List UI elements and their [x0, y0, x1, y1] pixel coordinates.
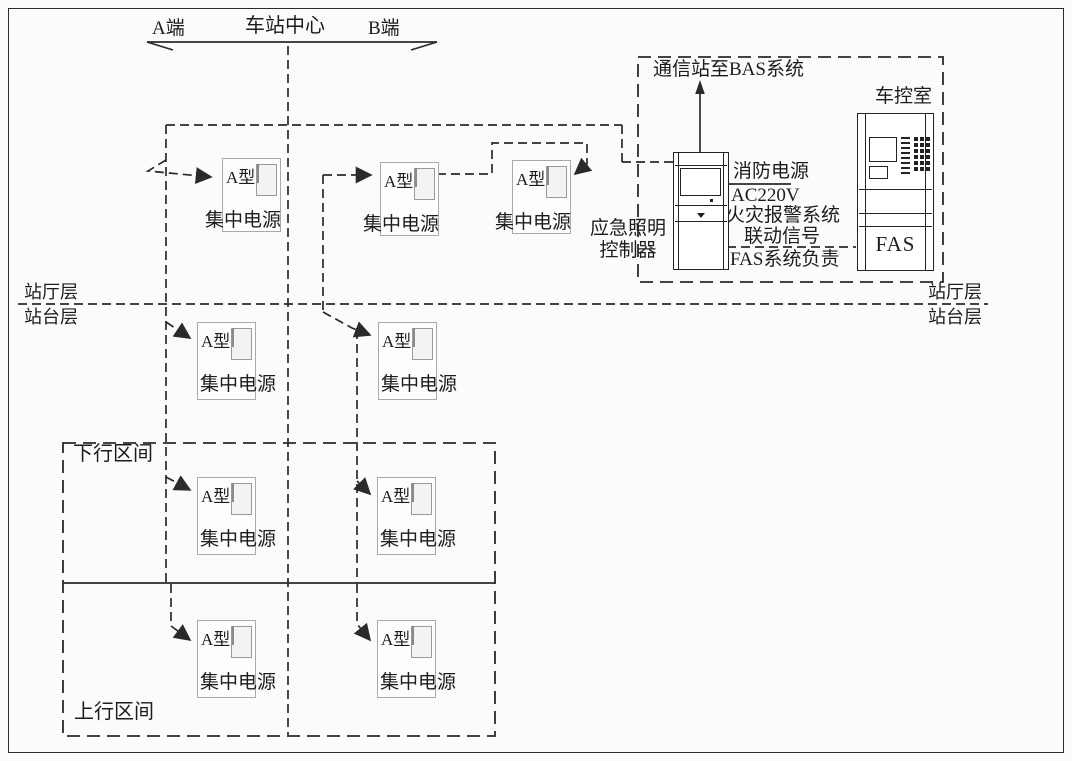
- eps-device-icon: [412, 328, 433, 360]
- fas-cabinet-label: FAS: [858, 232, 933, 257]
- branch-unit-4: [166, 322, 190, 338]
- cabinet-divider: [675, 205, 727, 206]
- bas-arrowhead: [695, 80, 705, 94]
- cabinet-rail: [678, 153, 679, 269]
- unit-name-label: 集中电源: [381, 369, 436, 396]
- unit-type-label: A型: [201, 630, 230, 650]
- branch-unit-9: [357, 584, 370, 640]
- eps-device-icon: [231, 328, 252, 360]
- unit-type-label: A型: [381, 630, 410, 650]
- unit-type-label: A型: [516, 170, 545, 190]
- branch-unit-5: [323, 312, 370, 335]
- controller-led: [710, 199, 713, 202]
- eps-unit-5: A型 集中电源: [378, 322, 437, 400]
- controller-latch-icon: [697, 213, 705, 218]
- branch-unit-7: [357, 481, 370, 494]
- linkage-label: 联动信号: [744, 226, 820, 247]
- cabinet-divider: [675, 221, 727, 222]
- unit-name-label: 集中电源: [363, 209, 438, 236]
- unit-type-label: A型: [382, 332, 411, 352]
- voltage-label: AC220V: [731, 185, 800, 206]
- cabinet-divider: [859, 213, 932, 214]
- eps-unit-7: A型 集中电源: [377, 477, 436, 555]
- eps-unit-6: A型 集中电源: [197, 477, 256, 555]
- center-line-tick-right: [411, 42, 437, 50]
- branch-unit-1: [148, 160, 211, 177]
- control-room-label: 车控室: [875, 86, 932, 107]
- hall-level-label-right: 站厅层: [928, 282, 982, 303]
- eps-unit-3: A型 集中电源: [512, 160, 571, 234]
- platform-level-label-right: 站台层: [928, 307, 982, 328]
- controller-name-line1: 应急照明: [590, 218, 666, 239]
- end-b-label: B端: [368, 18, 400, 39]
- controller-name-label: 应急照明 控制器: [584, 218, 672, 262]
- unit-type-label: A型: [201, 332, 230, 352]
- fire-power-label: 消防电源: [733, 161, 809, 182]
- cabinet-rail: [723, 153, 724, 269]
- fas-duty-label: FAS系统负责: [730, 249, 839, 270]
- eps-device-icon: [546, 166, 567, 198]
- unit-type-label: A型: [381, 487, 410, 507]
- fas-indicator-column: [901, 137, 910, 177]
- end-a-label: A端: [152, 18, 185, 39]
- fas-button-grid: [914, 137, 930, 177]
- unit-type-label: A型: [201, 487, 230, 507]
- cabinet-divider: [675, 165, 727, 166]
- eps-device-icon: [411, 483, 432, 515]
- diagram-canvas: A端 车站中心 B端 站厅层 站台层 站厅层 站台层 下行区间 上行区间 通信站…: [0, 0, 1072, 761]
- unit-name-label: 集中电源: [495, 207, 570, 234]
- fas-keypad: [869, 166, 888, 179]
- eps-unit-2: A型 集中电源: [380, 162, 439, 236]
- fire-alarm-label: 火灾报警系统: [726, 205, 840, 226]
- center-line-tick-left: [147, 42, 173, 50]
- unit-name-label: 集中电源: [205, 205, 280, 232]
- eps-device-icon: [231, 483, 252, 515]
- eps-unit-1: A型 集中电源: [222, 158, 281, 232]
- down-section-label: 下行区间: [73, 444, 153, 465]
- fas-cabinet: FAS: [857, 113, 934, 271]
- fas-display: [869, 137, 897, 162]
- unit-name-label: 集中电源: [200, 667, 255, 694]
- branch-unit-6: [166, 477, 190, 490]
- unit-name-label: 集中电源: [200, 524, 255, 551]
- branch-unit-8: [171, 584, 190, 640]
- unit-type-label: A型: [384, 172, 413, 192]
- station-center-label: 车站中心: [245, 16, 325, 37]
- up-section-label: 上行区间: [74, 702, 154, 723]
- unit-name-label: 集中电源: [380, 524, 435, 551]
- unit-name-label: 集中电源: [380, 667, 435, 694]
- platform-level-label-left: 站台层: [24, 307, 78, 328]
- bus-line: [166, 125, 674, 162]
- cabinet-divider: [859, 189, 932, 190]
- bas-link-label: 通信站至BAS系统: [653, 59, 804, 80]
- controller-display: [680, 168, 721, 196]
- eps-device-icon: [256, 164, 277, 196]
- eps-unit-4: A型 集中电源: [197, 322, 256, 400]
- eps-device-icon: [411, 626, 432, 658]
- eps-unit-9: A型 集中电源: [377, 620, 436, 698]
- unit-name-label: 集中电源: [200, 369, 255, 396]
- hall-level-label-left: 站厅层: [24, 282, 78, 303]
- controller-name-line2: 控制器: [599, 240, 656, 261]
- eps-unit-8: A型 集中电源: [197, 620, 256, 698]
- cabinet-divider: [859, 226, 932, 227]
- unit-type-label: A型: [226, 168, 255, 188]
- eps-device-icon: [231, 626, 252, 658]
- eps-device-icon: [414, 168, 435, 200]
- emergency-lighting-controller-cabinet: [673, 152, 729, 270]
